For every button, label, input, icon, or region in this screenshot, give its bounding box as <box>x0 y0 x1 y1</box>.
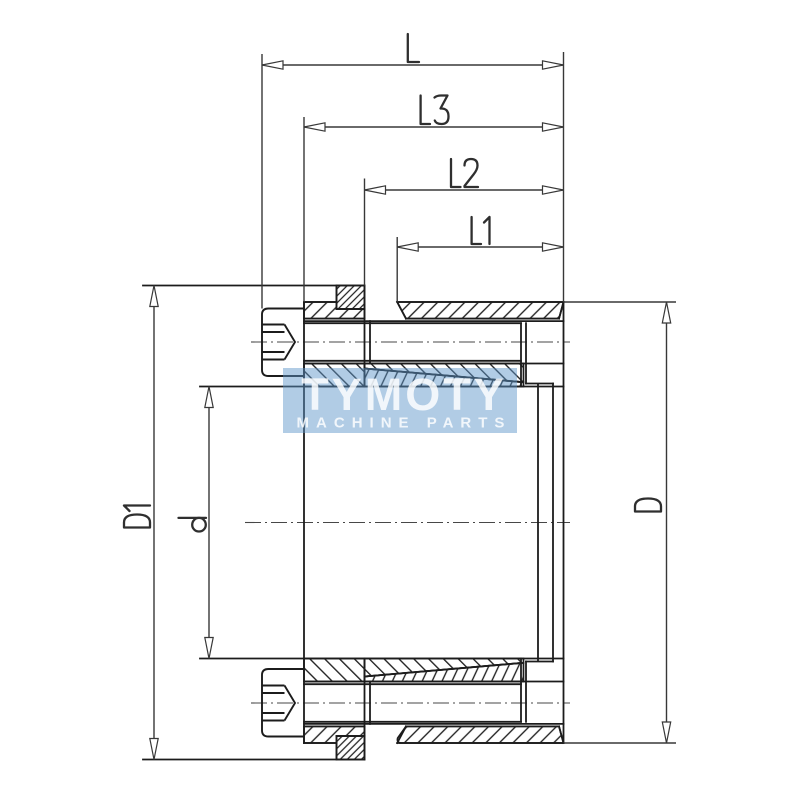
svg-text:MACHINE PARTS: MACHINE PARTS <box>297 415 512 432</box>
svg-text:TYMOTY: TYMOTY <box>301 369 507 420</box>
